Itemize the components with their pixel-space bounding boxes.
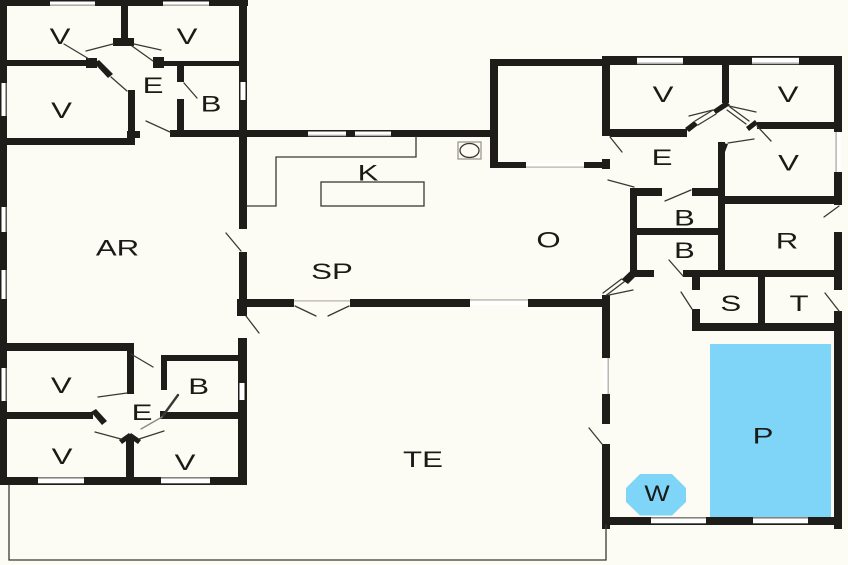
svg-text:R: R <box>776 229 799 253</box>
svg-text:P: P <box>753 424 774 448</box>
svg-text:B: B <box>674 238 695 262</box>
svg-text:E: E <box>132 400 153 424</box>
svg-text:TE: TE <box>403 447 443 471</box>
svg-text:V: V <box>50 24 71 48</box>
svg-text:S: S <box>720 291 741 315</box>
svg-text:AR: AR <box>96 236 139 260</box>
svg-text:E: E <box>652 145 673 169</box>
svg-text:K: K <box>358 161 379 185</box>
svg-text:V: V <box>51 373 72 397</box>
svg-text:V: V <box>778 151 799 175</box>
svg-text:O: O <box>536 228 560 252</box>
svg-text:E: E <box>143 73 164 97</box>
svg-text:V: V <box>52 444 73 468</box>
svg-text:W: W <box>644 482 670 506</box>
svg-text:V: V <box>778 82 799 106</box>
svg-text:T: T <box>789 291 808 315</box>
svg-text:V: V <box>177 24 198 48</box>
svg-text:B: B <box>201 92 222 116</box>
svg-text:SP: SP <box>311 259 353 283</box>
svg-text:V: V <box>653 82 674 106</box>
svg-text:B: B <box>188 374 209 398</box>
svg-text:V: V <box>175 450 196 474</box>
svg-text:B: B <box>674 206 695 230</box>
svg-text:V: V <box>51 98 72 122</box>
